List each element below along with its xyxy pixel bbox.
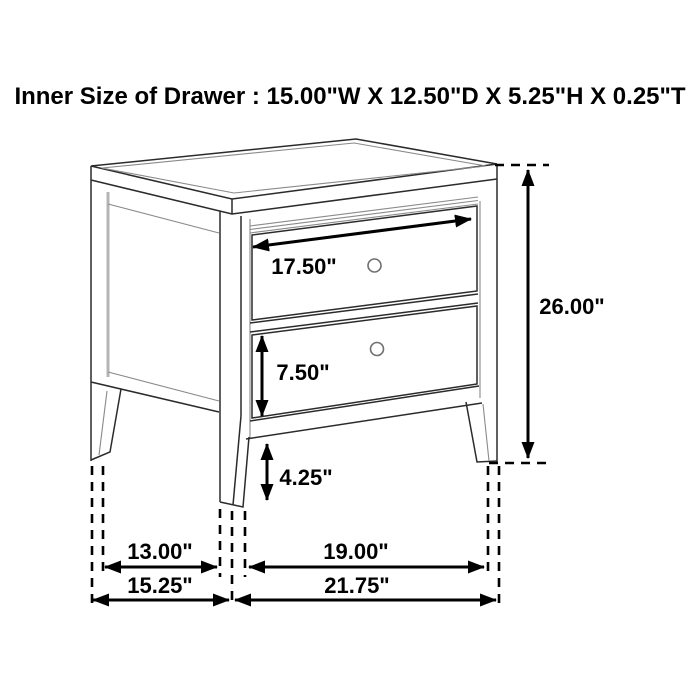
front-right-leg	[466, 402, 497, 462]
front-left-leg	[220, 416, 249, 507]
dim-overall-depth: 15.25"	[93, 573, 229, 600]
nightstand-line-drawing	[91, 139, 497, 507]
front-right-leg-taper-line	[483, 404, 489, 461]
dim-label-front-inner-leg-span: 19.00"	[323, 539, 388, 564]
dim-label-drawer-inner-width: 17.50"	[271, 254, 336, 279]
side-panel-bottom-edge	[91, 382, 219, 412]
dim-overall-height: 26.00"	[489, 165, 605, 463]
dim-label-leg-height: 4.25"	[279, 465, 332, 490]
dim-label-overall-height: 26.00"	[539, 294, 604, 319]
dim-label-side-inner-leg-span: 13.00"	[127, 539, 192, 564]
dim-front-inner-leg-span: 19.00"	[249, 539, 484, 567]
dim-label-overall-width: 21.75"	[324, 573, 389, 598]
top-drawer-knob	[368, 259, 381, 272]
bottom-drawer-knob	[371, 343, 384, 356]
dim-overall-width: 21.75"	[235, 573, 496, 600]
dim-label-bottom-drawer-height: 7.50"	[276, 360, 329, 385]
nightstand-diagram-svg: 17.50" 7.50" 4.25" 26.00"	[0, 0, 700, 700]
side-panel-recess-lines	[108, 204, 219, 401]
table-top-face	[91, 139, 497, 199]
product-dimension-diagram: Inner Size of Drawer : 15.00"W X 12.50"D…	[0, 0, 700, 700]
dim-leg-height: 4.25"	[267, 444, 333, 500]
table-top-bevel-line	[102, 143, 486, 193]
dim-side-inner-leg-span: 13.00"	[105, 539, 217, 567]
dim-label-overall-depth: 15.25"	[127, 573, 192, 598]
back-left-leg-taper-line	[99, 391, 107, 455]
